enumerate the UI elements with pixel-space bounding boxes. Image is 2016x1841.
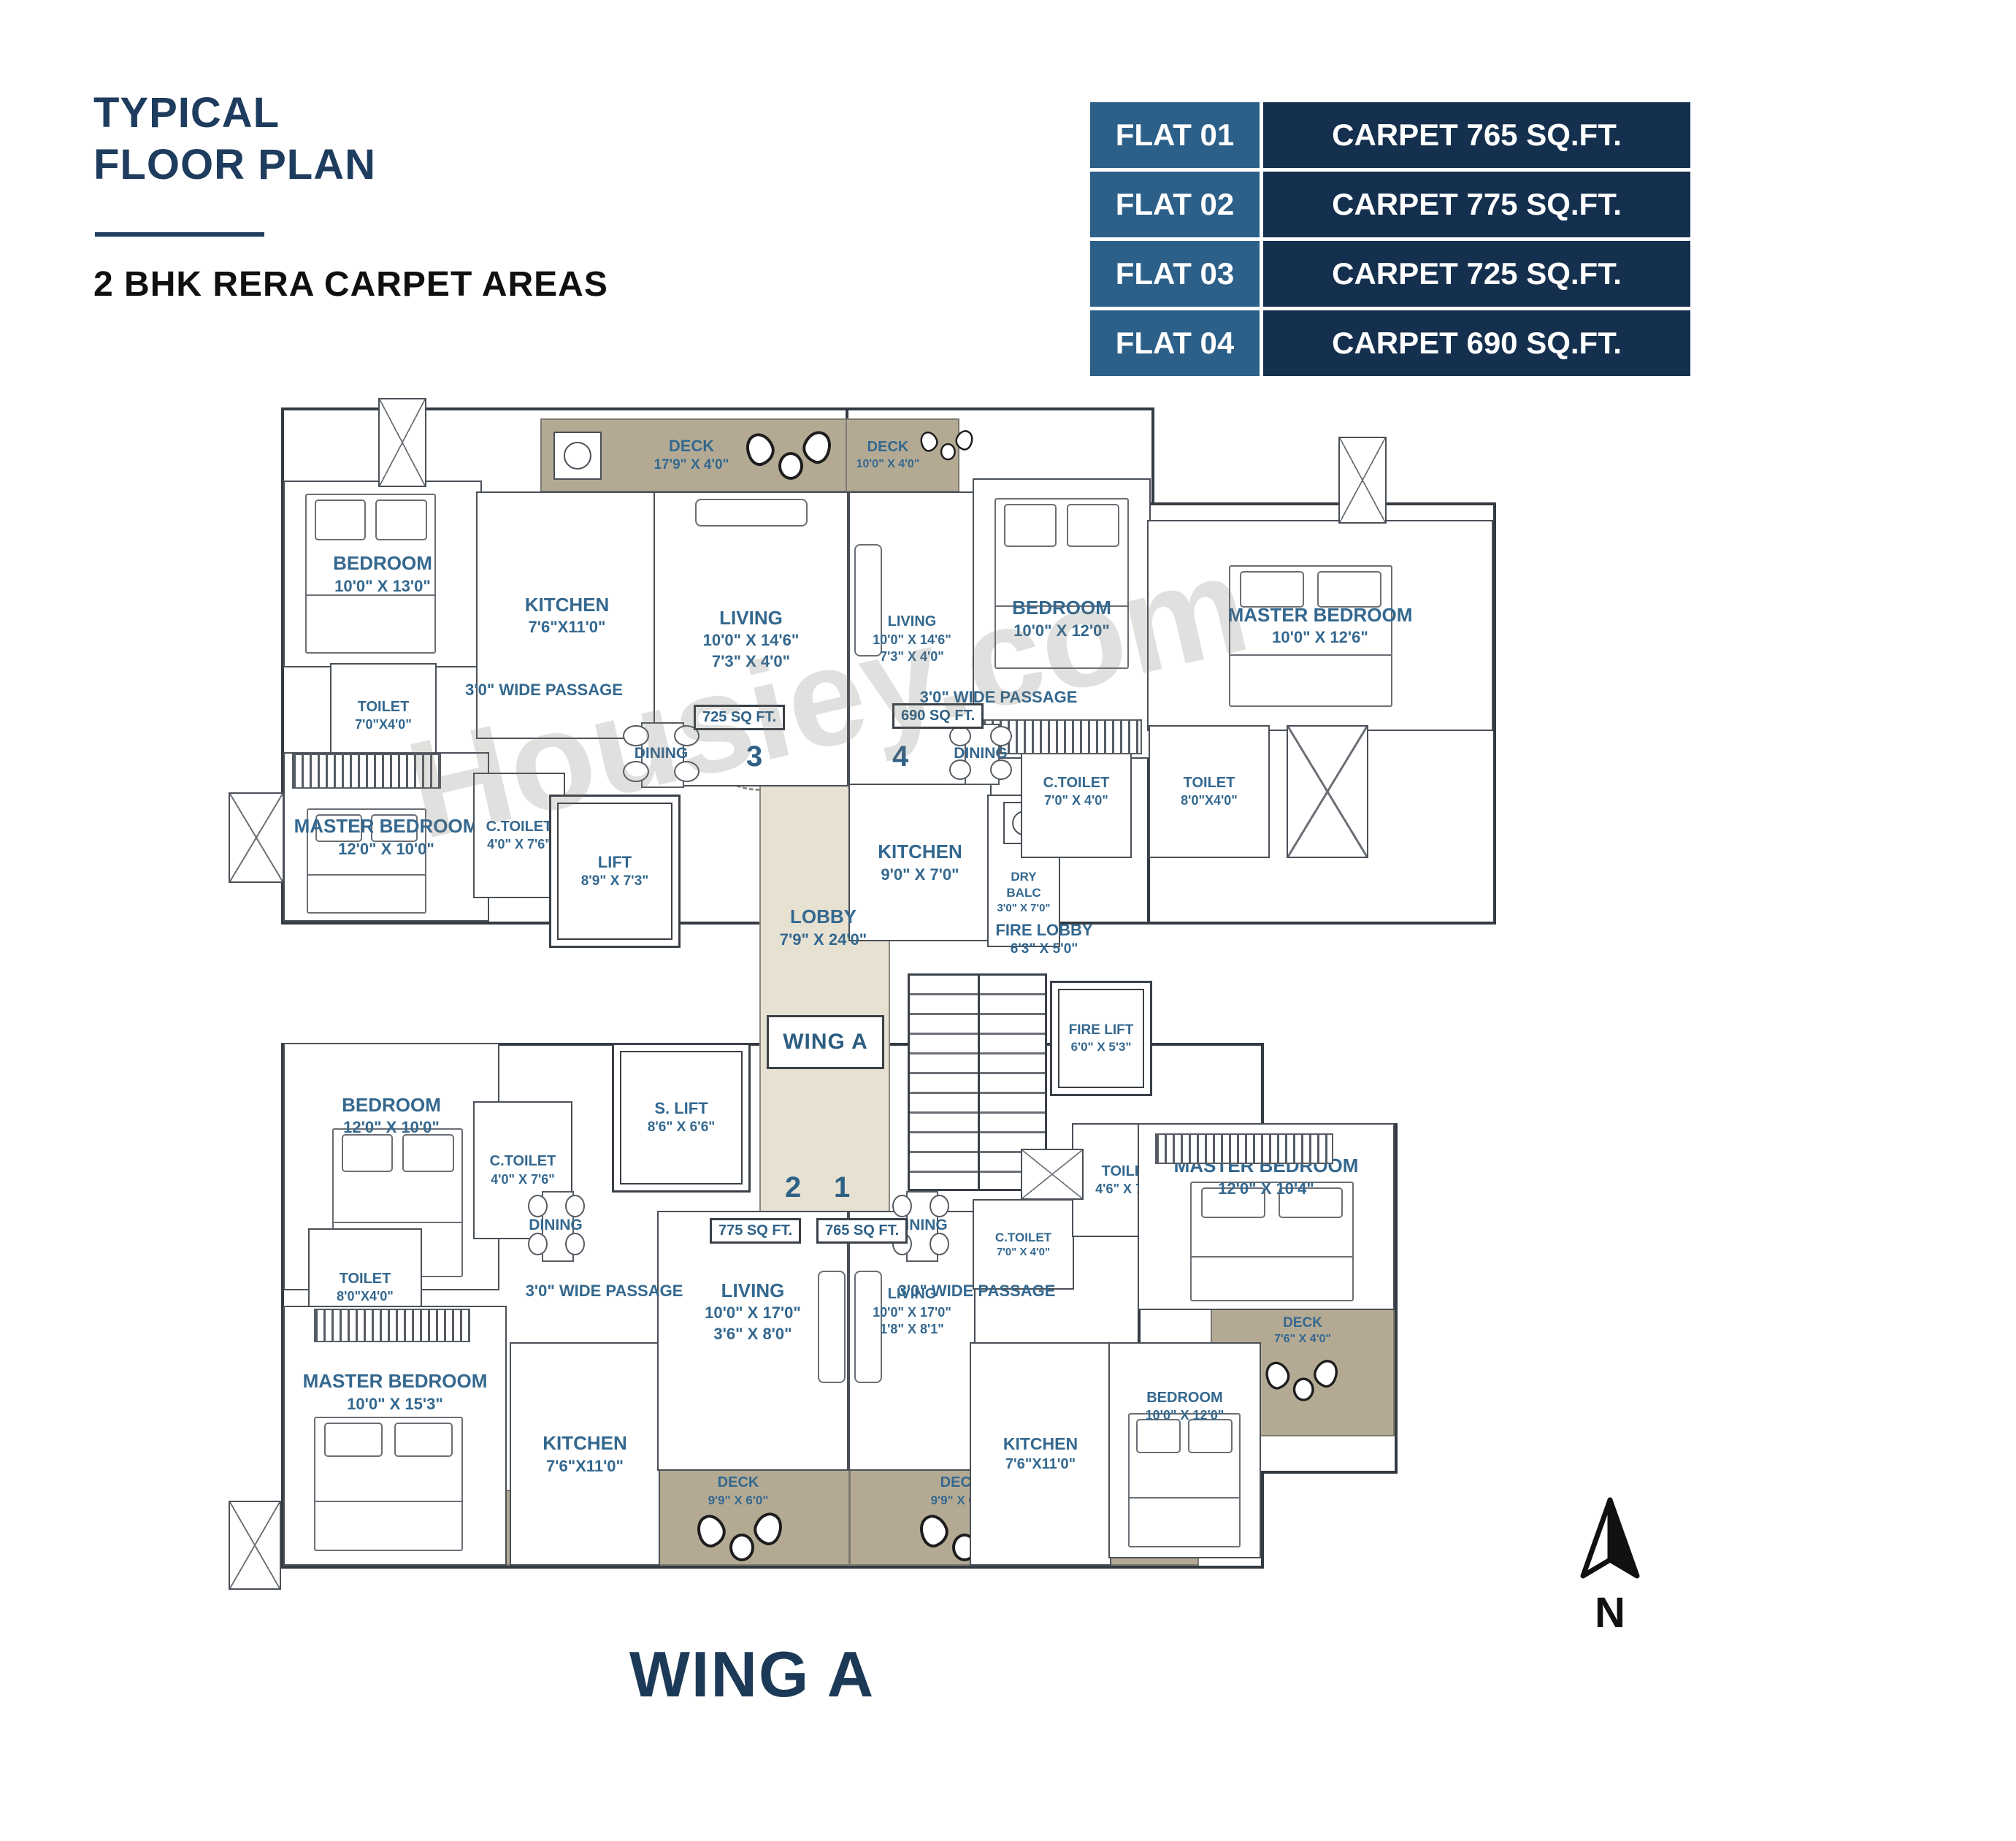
table-cell-carpet: CARPET 690 SQ.FT. — [1263, 310, 1690, 376]
flat4-master-bedroom: MASTER BEDROOM 10'0" X 12'6" — [1147, 520, 1493, 731]
room-name: C.TOILET — [995, 1230, 1051, 1246]
duct-shaft-icon — [1021, 1149, 1084, 1200]
flat-area-table: FLAT 01 CARPET 765 SQ.FT. FLAT 02 CARPET… — [1090, 102, 1690, 376]
table-cell-flat: FLAT 04 — [1090, 310, 1260, 376]
deck-label: DECK 9'9" X 6'0" — [628, 1471, 848, 1512]
room-name: TOILET — [358, 698, 410, 717]
room-name: MASTER BEDROOM — [1228, 603, 1413, 627]
room-dims: 8'0"X4'0" — [1181, 792, 1238, 809]
lift-cab: LIFT 8'9" X 7'3" — [557, 803, 672, 940]
flat2-kitchen: KITCHEN 7'6"X11'0" — [510, 1342, 660, 1566]
room-name: BEDROOM — [1012, 596, 1111, 620]
room-dims: 6'3" X 5'0" — [1011, 941, 1078, 958]
flat1-passage-label: 3'0" WIDE PASSAGE — [894, 1277, 1059, 1306]
table-cell-carpet: CARPET 765 SQ.FT. — [1263, 102, 1690, 168]
room-name: DECK — [669, 436, 714, 456]
room-dims: 10'0" X 14'6" 7'3" X 4'0" — [873, 632, 951, 665]
deck-label: DECK 10'0" X 4'0" — [848, 420, 927, 491]
wardrobe-icon — [1155, 1133, 1333, 1164]
room-dims: 7'6" X 4'0" — [1274, 1332, 1331, 1347]
wardrobe-icon — [314, 1309, 470, 1342]
duct-shaft-icon — [1287, 725, 1368, 858]
room-dims: 10'0" X 17'0" 3'6" X 8'0" — [705, 1303, 801, 1344]
door-number-1: 1 — [834, 1171, 850, 1204]
room-name: BEDROOM — [1146, 1389, 1222, 1408]
lift-cab: FIRE LIFT 6'0" X 5'3" — [1058, 989, 1144, 1088]
room-dims: 7'9" X 24'0" — [780, 930, 867, 950]
room-dims: 9'9" X 6'0" — [708, 1493, 769, 1509]
room-name: C.TOILET — [486, 818, 553, 837]
flat1-kitchen: KITCHEN 7'6"X11'0" — [970, 1342, 1111, 1566]
bed-icon — [994, 498, 1129, 669]
room-name: C.TOILET — [490, 1152, 556, 1171]
room-dims: 7'0" X 4'0" — [997, 1245, 1050, 1259]
bed-icon — [1190, 1182, 1354, 1301]
deck-label: DECK 17'9" X 4'0" — [622, 420, 761, 491]
north-label: N — [1570, 1588, 1650, 1637]
room-dims: 10'0" X 12'0" — [1146, 1407, 1224, 1424]
room-name: LIFT — [598, 852, 632, 873]
duct-shaft-icon — [229, 792, 284, 883]
table-cell-flat: FLAT 03 — [1090, 241, 1260, 307]
duct-shaft-icon — [229, 1501, 281, 1590]
room-dims: 10'0" X 14'6" 7'3" X 4'0" — [703, 630, 800, 671]
lift-cab: S. LIFT 8'6" X 6'6" — [620, 1051, 743, 1184]
duct-shaft-icon — [1338, 437, 1387, 524]
wing-a-plate: WING A — [767, 1015, 884, 1069]
room-name: LIVING — [888, 613, 937, 632]
room-dims: 10'0" X 15'3" — [347, 1394, 443, 1415]
north-indicator: N — [1570, 1494, 1650, 1637]
room-dims: 9'0" X 7'0" — [881, 865, 959, 885]
room-dims: 10'0" X 17'0" 1'8" X 8'1" — [873, 1304, 951, 1338]
room-name: TOILET — [340, 1270, 391, 1289]
wardrobe-icon — [292, 754, 441, 789]
flat3-bedroom: BEDROOM 10'0" X 13'0" — [283, 481, 482, 667]
flat4-area-tag: 690 SQ FT. — [892, 703, 984, 729]
room-dims: 7'0" X 4'0" — [1044, 792, 1108, 809]
room-dims: 8'6" X 6'6" — [648, 1119, 716, 1136]
flat2-passage-label: 3'0" WIDE PASSAGE — [522, 1277, 686, 1306]
flat3-deck: DECK 17'9" X 4'0" — [540, 418, 850, 492]
room-name: MASTER BEDROOM — [294, 814, 479, 838]
door-number-2: 2 — [785, 1171, 801, 1204]
room-name: BEDROOM — [333, 551, 432, 575]
room-name: DECK — [718, 1474, 759, 1493]
service-lift-shaft: S. LIFT 8'6" X 6'6" — [612, 1043, 751, 1193]
room-dims: 8'9" X 7'3" — [581, 873, 649, 890]
room-name: FIRE LIFT — [1069, 1022, 1134, 1039]
room-dims: 7'0"X4'0" — [355, 716, 412, 733]
deck-chairs-icon — [1265, 1358, 1335, 1401]
fire-lobby-label: FIRE LOBBY 6'3" X 5'0" — [949, 904, 1139, 974]
deck-chairs-icon — [921, 429, 971, 460]
flat2-area-tag: 775 SQ FT. — [710, 1218, 801, 1244]
room-name: C.TOILET — [1043, 774, 1110, 793]
room-dims: 8'0"X4'0" — [337, 1288, 394, 1305]
bed-icon — [1128, 1413, 1241, 1547]
table-cell-carpet: CARPET 725 SQ.FT. — [1263, 241, 1690, 307]
room-dims: 12'0" X 10'4" — [1218, 1179, 1314, 1199]
deck-chairs-icon — [697, 1510, 779, 1561]
door-number-3: 3 — [746, 740, 762, 773]
north-arrow-icon — [1570, 1494, 1650, 1583]
room-name: DECK — [867, 438, 909, 457]
flat4-toilet: TOILET 8'0"X4'0" — [1149, 725, 1270, 858]
bed-icon — [314, 1417, 463, 1551]
table-cell-flat: FLAT 01 — [1090, 102, 1260, 168]
room-dims: 6'0" X 5'3" — [1071, 1039, 1132, 1055]
title-underline — [95, 232, 264, 237]
room-name: KITCHEN — [543, 1431, 627, 1455]
flat2-master-bedroom: MASTER BEDROOM 10'0" X 15'3" — [283, 1306, 507, 1566]
flat4-deck: DECK 10'0" X 4'0" — [846, 418, 959, 492]
duct-shaft-icon — [378, 398, 426, 487]
wing-a-footer-label: WING A — [570, 1637, 935, 1712]
room-name: DECK — [1283, 1314, 1322, 1332]
room-name: KITCHEN — [525, 593, 610, 617]
flat3-passage-label: 3'0" WIDE PASSAGE — [467, 675, 621, 705]
flat3-area-tag: 725 SQ FT. — [694, 705, 785, 730]
room-name: FIRE LOBBY — [995, 920, 1092, 941]
table-cell-flat: FLAT 02 — [1090, 172, 1260, 237]
room-name: BEDROOM — [342, 1093, 441, 1117]
door-number-4: 4 — [892, 740, 908, 773]
room-name: DRY BALC — [1006, 869, 1040, 901]
flat2-dining-label: DINING — [515, 1211, 597, 1240]
room-dims: 4'0" X 7'6" — [487, 836, 551, 853]
flat3-dining-label: DINING — [619, 739, 703, 768]
room-name: S. LIFT — [654, 1098, 708, 1119]
flat4-bedroom: BEDROOM 10'0" X 12'0" — [973, 478, 1151, 759]
sofa-icon — [695, 499, 808, 527]
sofa-icon — [818, 1271, 846, 1383]
washing-machine-icon — [553, 432, 602, 480]
room-name: MASTER BEDROOM — [303, 1369, 488, 1393]
room-dims: 12'0" X 10'0" — [343, 1117, 440, 1138]
room-name: TOILET — [1184, 774, 1235, 793]
room-name: LIVING — [719, 606, 783, 630]
room-name: KITCHEN — [1003, 1434, 1078, 1455]
room-dims: 4'0" X 7'6" — [491, 1171, 555, 1188]
fire-lift-shaft: FIRE LIFT 6'0" X 5'3" — [1050, 981, 1152, 1096]
room-dims: 7'6"X11'0" — [529, 617, 606, 638]
flat1-area-tag: 765 SQ FT. — [816, 1218, 908, 1244]
room-name: LIVING — [721, 1279, 785, 1303]
room-dims: 7'6"X11'0" — [1005, 1455, 1076, 1474]
room-name: KITCHEN — [878, 840, 962, 864]
lobby-label: LOBBY 7'9" X 24'0" — [759, 902, 887, 953]
table-cell-carpet: CARPET 775 SQ.FT. — [1263, 172, 1690, 237]
flat1-bedroom: BEDROOM 10'0" X 12'0" — [1108, 1342, 1261, 1558]
page-title: TYPICAL FLOOR PLAN — [93, 88, 376, 191]
room-dims: 10'0" X 4'0" — [856, 457, 920, 472]
room-dims: 7'6"X11'0" — [546, 1456, 624, 1477]
room-dims: 10'0" X 12'6" — [1272, 627, 1368, 648]
room-name: LOBBY — [790, 905, 856, 929]
room-dims: 12'0" X 10'0" — [338, 839, 434, 860]
flat4-dining-label: DINING — [940, 739, 1021, 768]
room-dims: 17'9" X 4'0" — [654, 456, 729, 474]
room-dims: 10'0" X 12'0" — [1013, 621, 1110, 641]
flat2-living: LIVING 10'0" X 17'0" 3'6" X 8'0" — [657, 1211, 848, 1471]
lift-shaft: LIFT 8'9" X 7'3" — [549, 795, 681, 948]
page-subtitle: 2 BHK RERA CARPET AREAS — [93, 264, 608, 305]
room-dims: 10'0" X 13'0" — [334, 576, 431, 597]
